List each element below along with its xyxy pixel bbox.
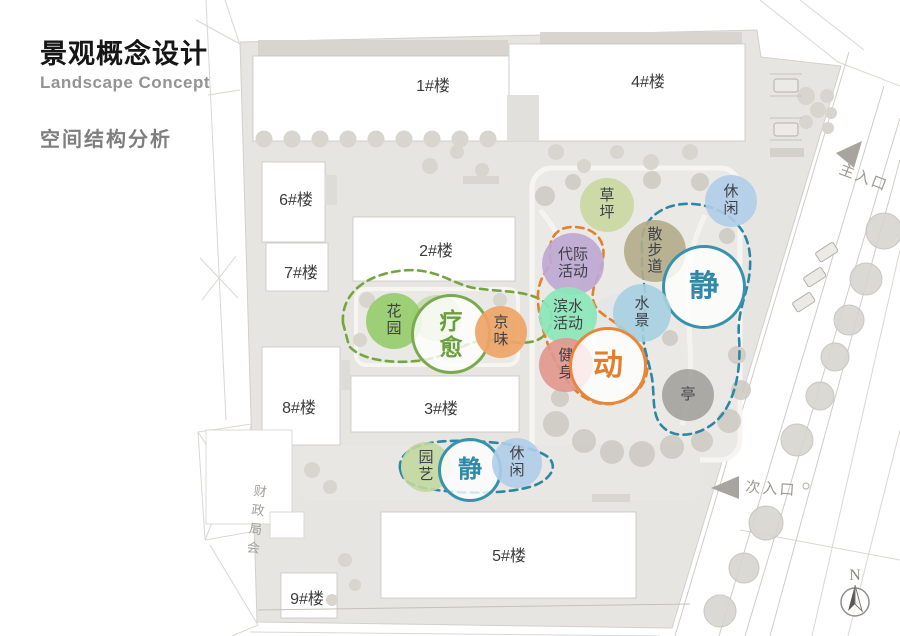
zone-bubble-pavilion: 亭 <box>662 369 714 421</box>
landscape-concept-diagram: 景观概念设计 Landscape Concept 空间结构分析 1#楼 4#楼 … <box>0 0 900 636</box>
zone-label: 草 <box>599 188 614 205</box>
north-label: N <box>849 567 861 585</box>
car-icon <box>803 267 827 288</box>
zone-label: 味 <box>493 332 508 349</box>
zone-label: 水 <box>634 296 649 313</box>
zone-label: 活动 <box>558 264 588 281</box>
zone-label: 滨水 <box>553 299 583 316</box>
page-subtitle: Landscape Concept <box>40 73 240 93</box>
illegible-note-box <box>463 176 499 184</box>
neighbor-building <box>270 512 304 538</box>
zone-label: 静 <box>689 270 719 304</box>
zone-bubble-leisure-lower: 休 闲 <box>492 438 542 488</box>
building-label-3: 3#楼 <box>424 395 458 419</box>
building-label-6: 6#楼 <box>279 186 313 210</box>
secondary-entrance-label: 次入口 <box>745 476 797 501</box>
zone-label: 步 <box>647 243 662 259</box>
building-label-1: 1#楼 <box>416 72 450 96</box>
title-block: 景观概念设计 Landscape Concept 空间结构分析 <box>40 32 240 152</box>
zone-bubble-active: 动 <box>569 327 647 405</box>
zone-label: 休 <box>509 446 524 463</box>
zone-label: 静 <box>458 457 482 484</box>
section-title: 空间结构分析 <box>40 123 240 152</box>
illegible-note-box <box>592 494 630 502</box>
zone-label: 园 <box>386 321 401 338</box>
building-label-4: 4#楼 <box>631 68 665 92</box>
building-1 <box>253 56 509 141</box>
zone-label: 坪 <box>599 205 614 222</box>
building-label-5: 5#楼 <box>492 542 526 566</box>
zone-label: 闲 <box>509 463 524 480</box>
building-label-7: 7#楼 <box>284 259 318 283</box>
stair-core <box>340 360 350 390</box>
zone-label: 疗 <box>440 308 463 334</box>
building-label-9: 9#楼 <box>290 585 324 609</box>
roadside-cars <box>792 242 839 313</box>
zone-label: 活动 <box>553 316 583 333</box>
car-icon <box>815 242 839 263</box>
car-icon <box>774 79 798 92</box>
page-title: 景观概念设计 <box>40 32 240 71</box>
survey-marker <box>803 483 809 489</box>
zone-label: 动 <box>593 349 623 383</box>
building-4 <box>509 44 745 141</box>
stair-core <box>325 175 337 205</box>
car-icon <box>792 292 816 313</box>
building-gap <box>507 95 539 141</box>
zone-label: 道 <box>647 259 662 275</box>
roof-strip <box>258 40 508 56</box>
zone-label: 园 <box>418 450 433 467</box>
zone-label: 代际 <box>558 247 588 264</box>
zone-bubble-lawn: 草 坪 <box>580 178 634 232</box>
zone-label: 闲 <box>723 201 738 218</box>
zone-label: 散 <box>647 227 662 243</box>
zone-label: 艺 <box>418 467 433 484</box>
zone-label: 休 <box>723 184 738 201</box>
building-label-8: 8#楼 <box>282 394 316 418</box>
hatched-strip <box>770 148 804 157</box>
north-compass <box>841 585 869 616</box>
zone-bubble-intergenerational: 代际 活动 <box>542 233 604 295</box>
zone-bubble-quiet-upper: 静 <box>662 245 746 329</box>
zone-bubble-leisure-upper: 休 闲 <box>705 175 757 227</box>
zone-label: 愈 <box>440 334 463 360</box>
car-icon <box>774 123 798 136</box>
zone-label: 亭 <box>680 387 695 404</box>
zone-label: 景 <box>634 313 649 330</box>
zone-label: 花 <box>386 304 401 321</box>
zone-bubble-beijing-flavor: 京 味 <box>475 306 527 358</box>
zone-label: 京 <box>493 315 508 332</box>
building-label-2: 2#楼 <box>419 237 453 261</box>
